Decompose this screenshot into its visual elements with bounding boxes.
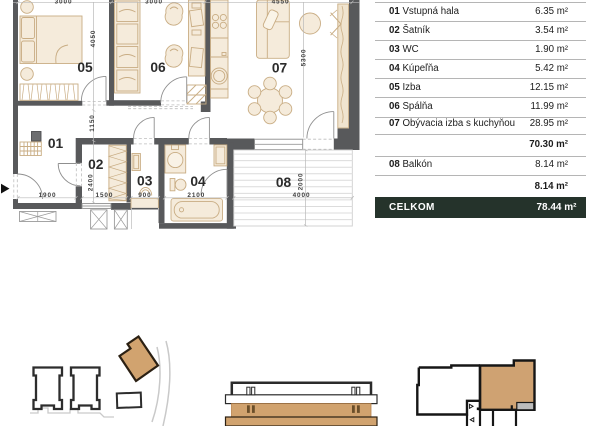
svg-text:08: 08 [276, 175, 292, 190]
svg-text:05: 05 [77, 60, 93, 75]
svg-text:02: 02 [88, 157, 104, 172]
svg-text:04: 04 [190, 174, 206, 189]
svg-text:2000: 2000 [298, 173, 305, 191]
svg-text:1150: 1150 [89, 114, 96, 131]
svg-text:3000: 3000 [55, 0, 73, 5]
svg-text:4550: 4550 [272, 0, 290, 5]
svg-text:3000: 3000 [145, 0, 163, 5]
svg-text:06: 06 [150, 60, 166, 75]
svg-text:1900: 1900 [39, 192, 57, 199]
svg-text:2400: 2400 [87, 173, 94, 191]
svg-text:5300: 5300 [301, 49, 308, 67]
svg-text:03: 03 [137, 174, 153, 189]
svg-text:01: 01 [48, 136, 64, 151]
svg-text:900: 900 [138, 192, 151, 199]
svg-text:4050: 4050 [90, 30, 97, 48]
svg-text:07: 07 [272, 61, 288, 76]
svg-text:2100: 2100 [187, 192, 205, 199]
svg-text:4000: 4000 [293, 192, 311, 199]
svg-text:1500: 1500 [95, 192, 113, 199]
